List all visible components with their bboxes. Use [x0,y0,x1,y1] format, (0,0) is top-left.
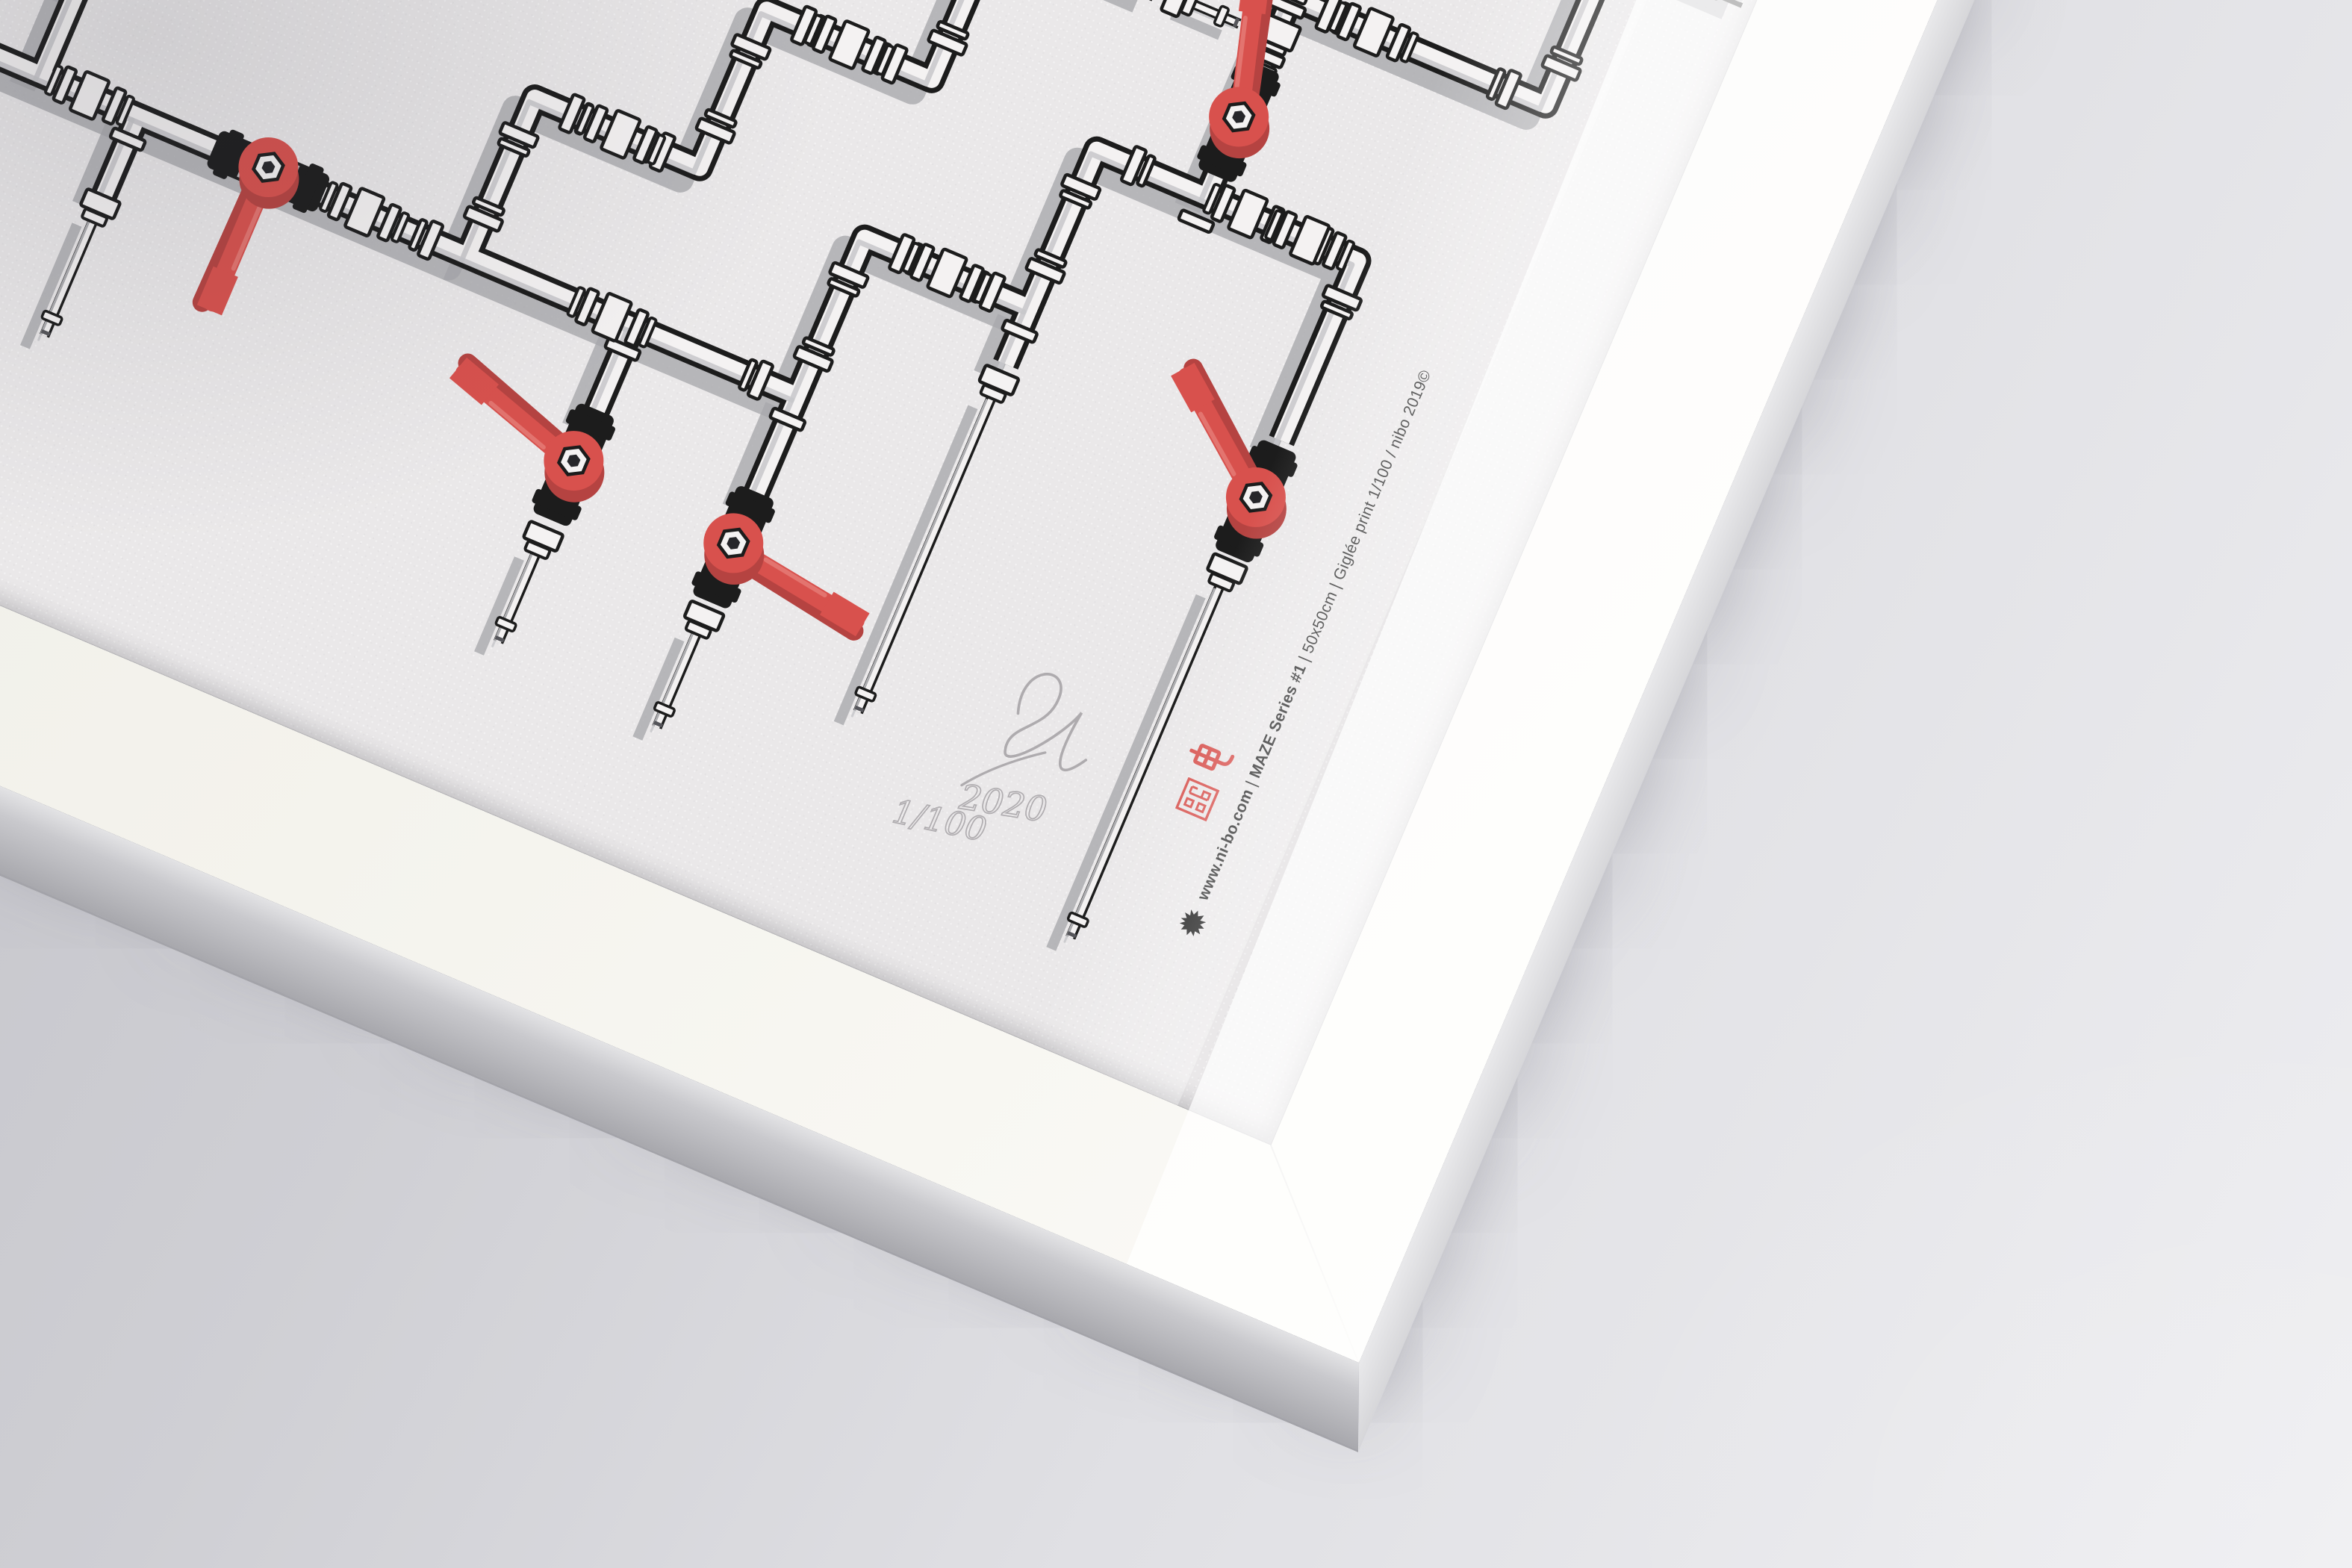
photo-scene: 2020 1/100 www.ni-bo.com | MAZE Series #… [0,0,2352,1568]
picture-frame: 2020 1/100 www.ni-bo.com | MAZE Series #… [0,0,2162,1363]
signature-scribble [998,667,1111,785]
